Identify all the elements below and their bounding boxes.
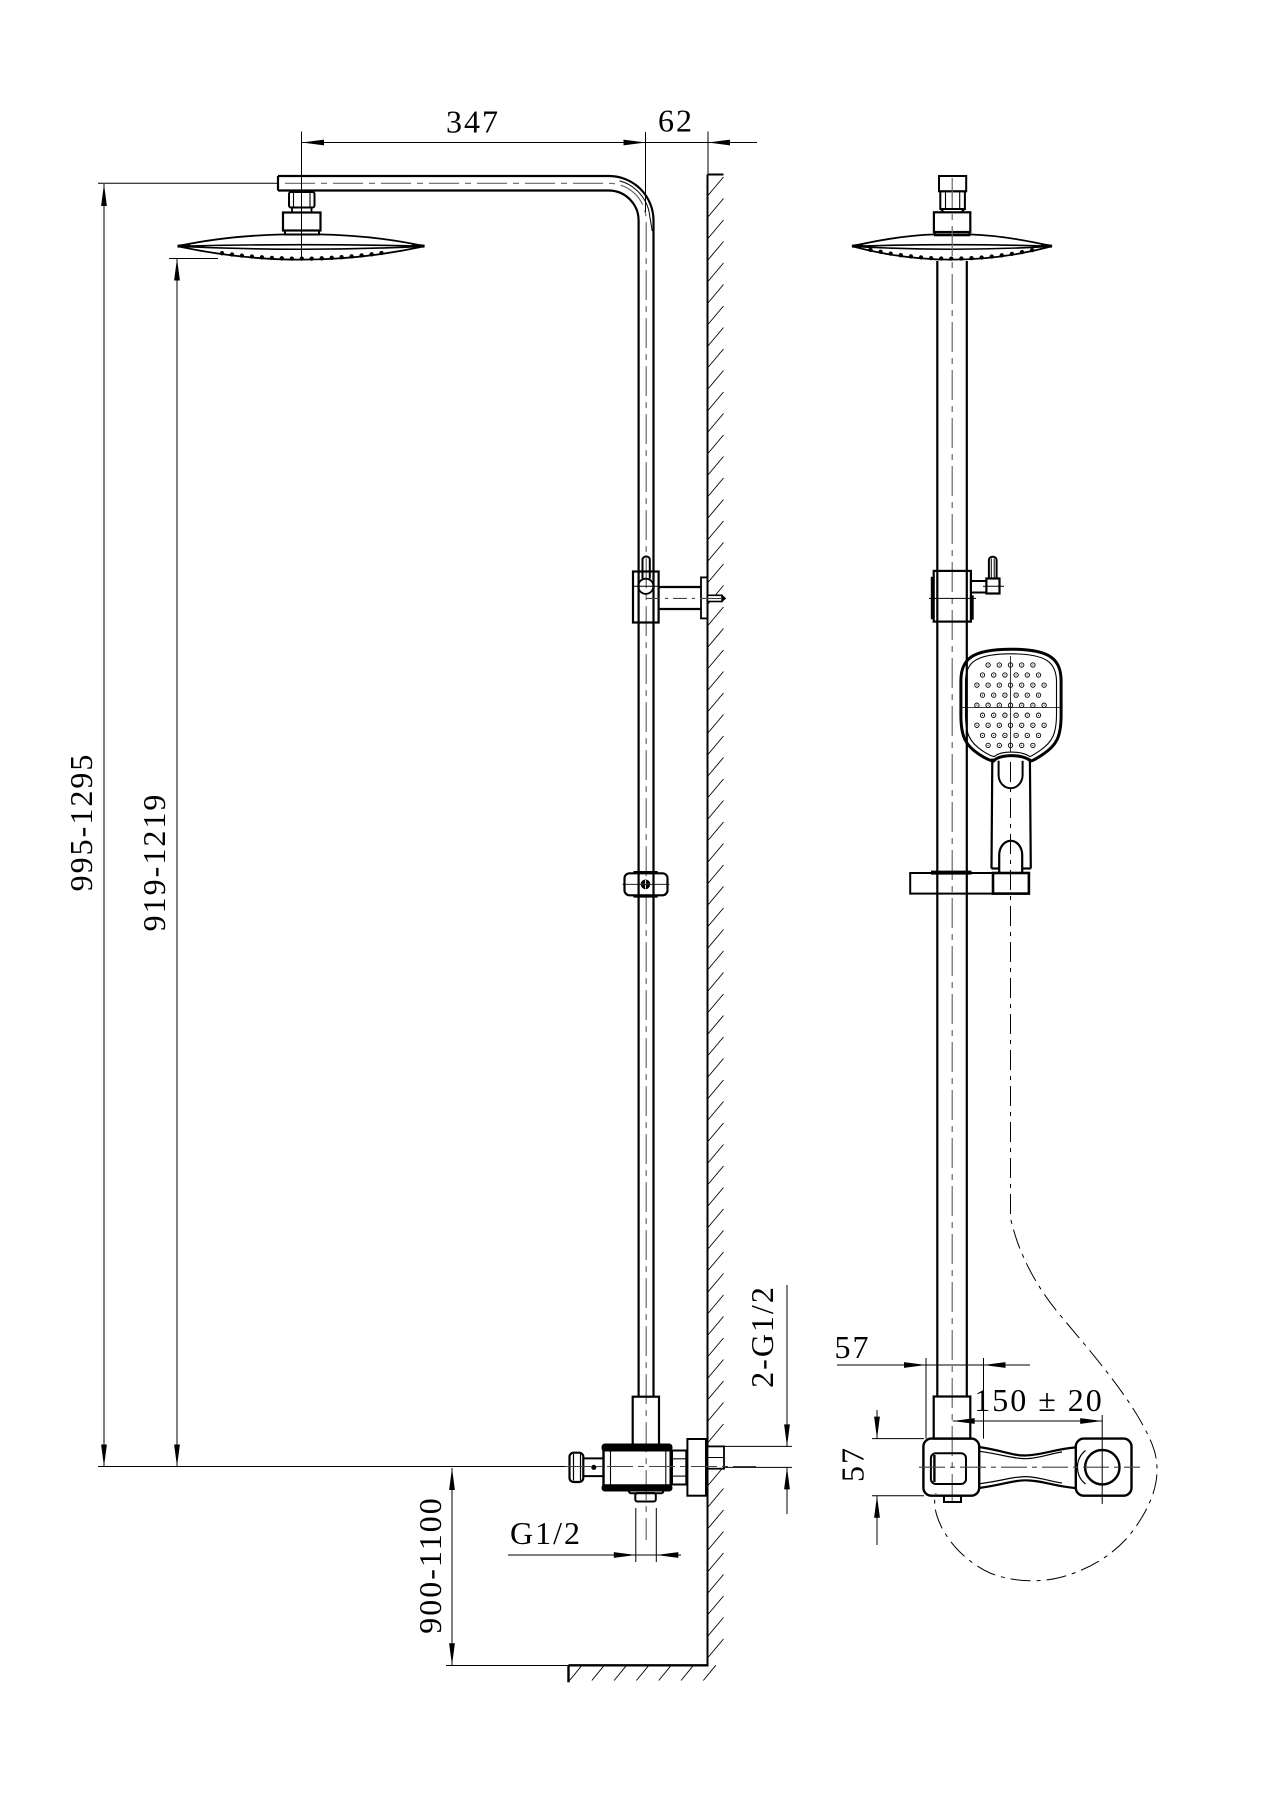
svg-text:995-1295: 995-1295	[63, 753, 99, 892]
svg-text:57: 57	[835, 1329, 871, 1365]
svg-text:900-1100: 900-1100	[412, 1496, 448, 1633]
svg-text:57: 57	[835, 1446, 871, 1482]
svg-text:62: 62	[658, 103, 694, 139]
svg-text:347: 347	[446, 104, 500, 140]
svg-text:150 ± 20: 150 ± 20	[974, 1382, 1104, 1418]
svg-text:G1/2: G1/2	[510, 1515, 582, 1551]
svg-text:919-1219: 919-1219	[136, 793, 172, 932]
svg-text:2-G1/2: 2-G1/2	[744, 1285, 780, 1388]
